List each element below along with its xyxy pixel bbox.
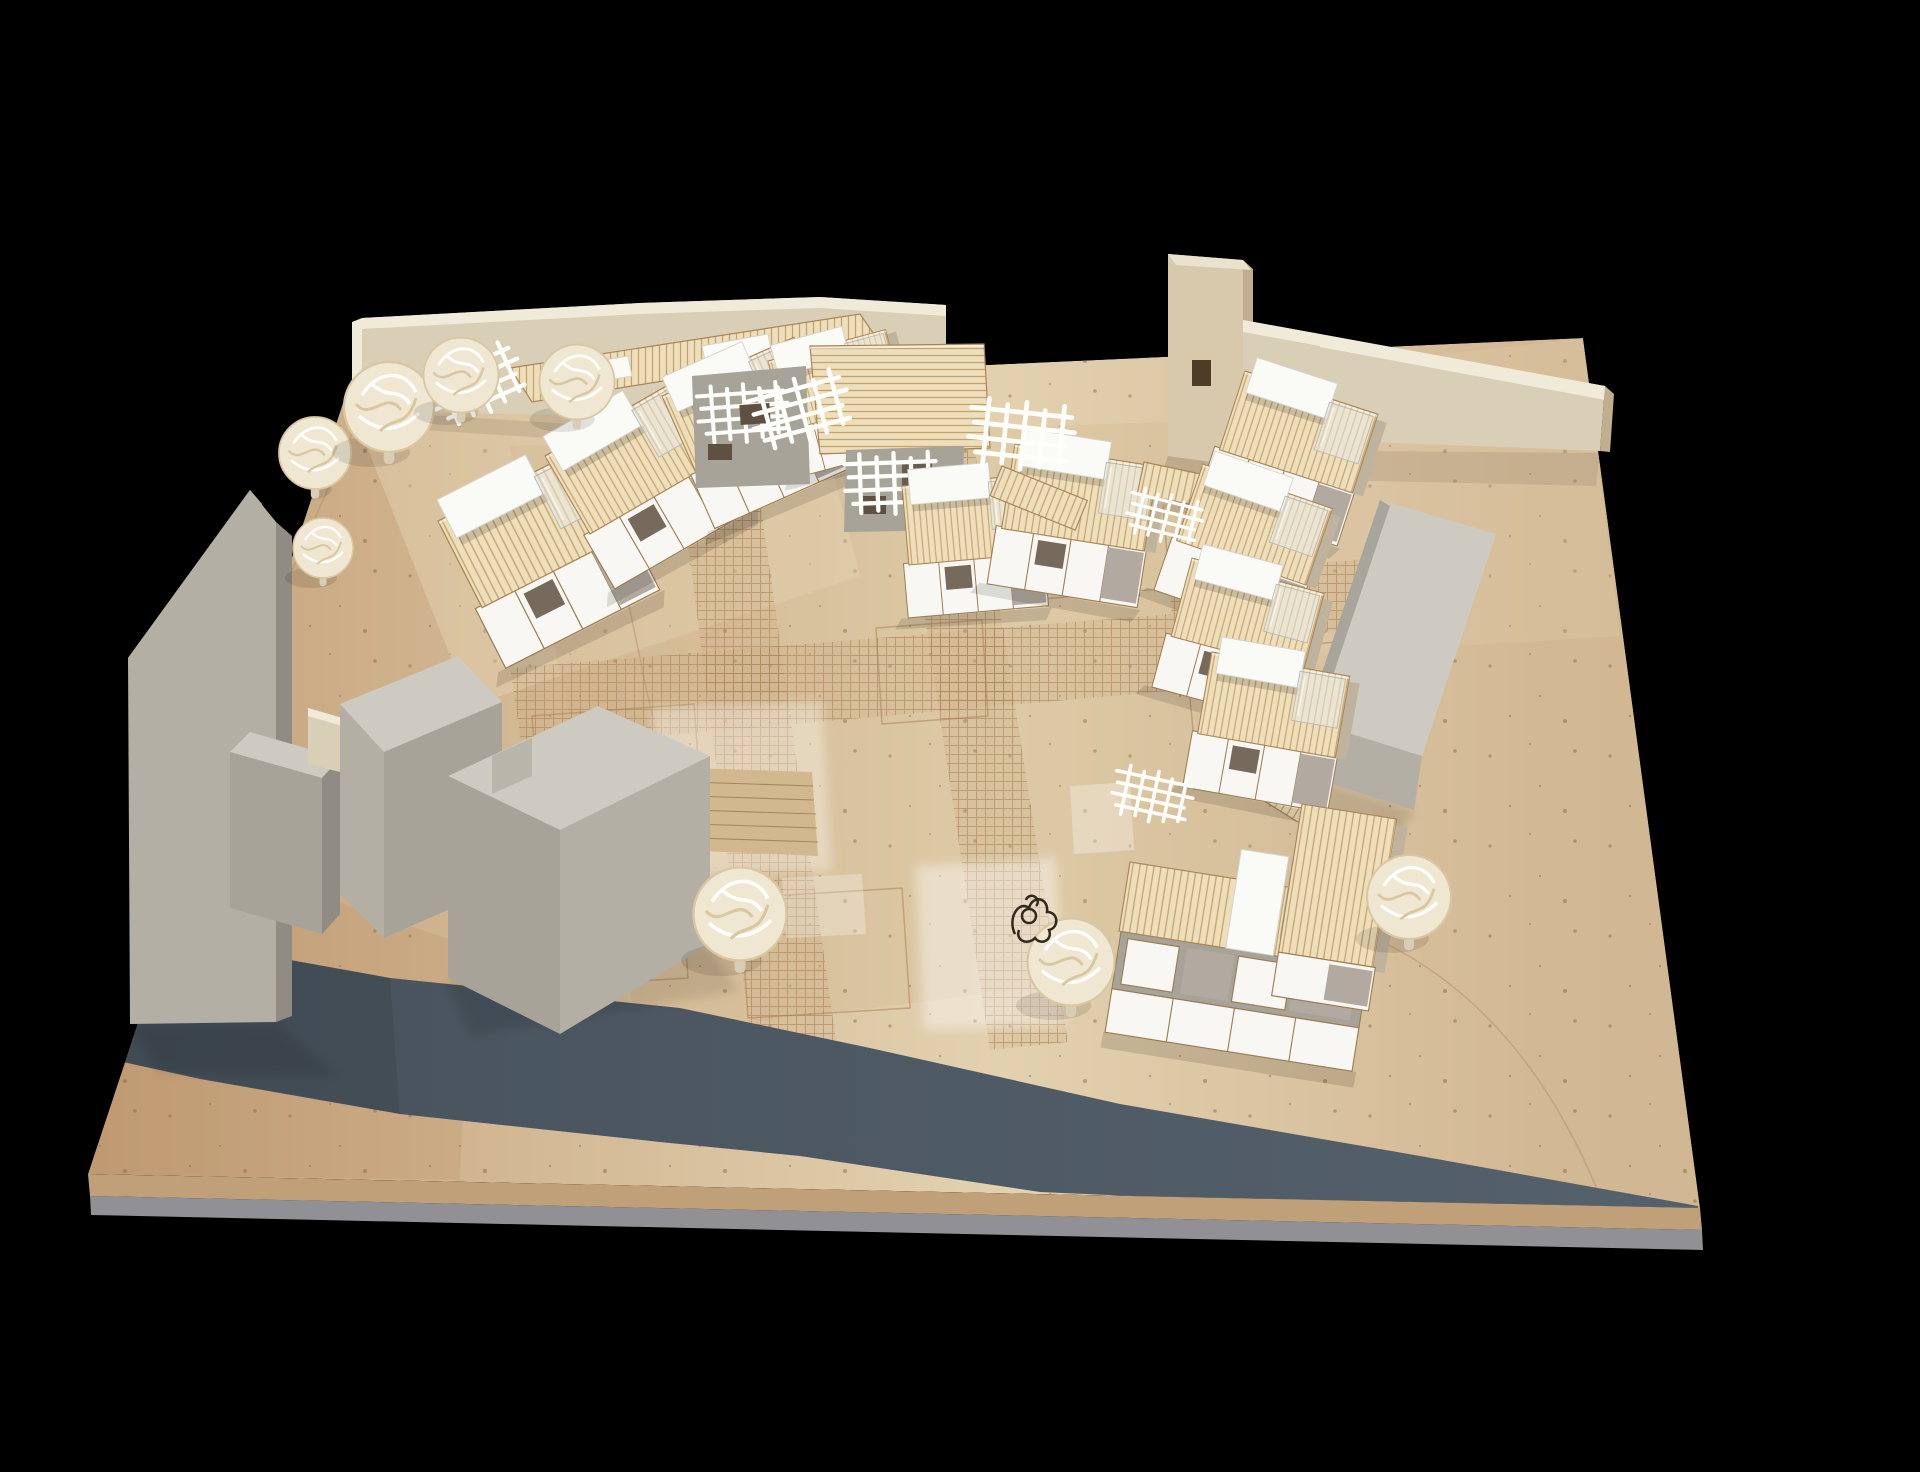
model-scene (40, 16, 1920, 1456)
glossy-patch (782, 874, 866, 938)
tower-window (1192, 360, 1211, 386)
architectural-model-photo: Photograph of a cardboard and balsa arch… (40, 16, 1920, 1456)
